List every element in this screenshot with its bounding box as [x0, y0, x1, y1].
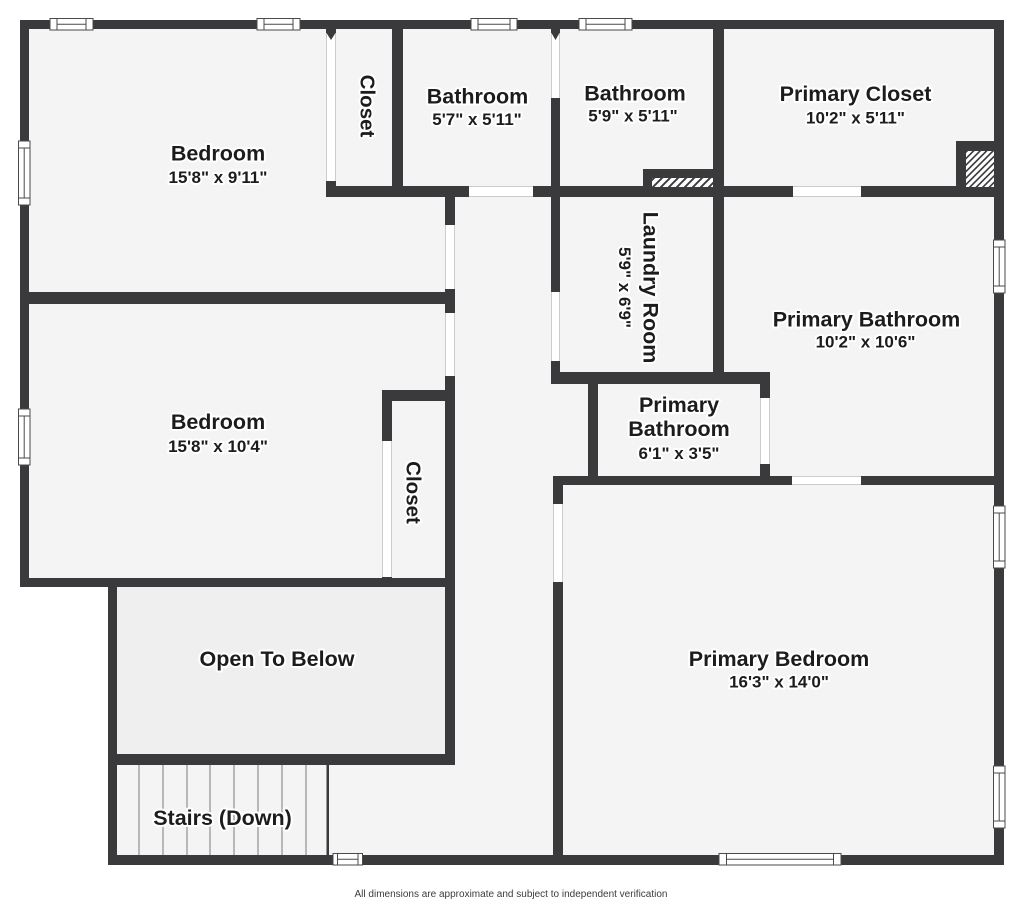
svg-text:Bathroom: Bathroom [584, 82, 686, 106]
svg-text:Bathroom: Bathroom [427, 85, 529, 109]
svg-text:Stairs (Down): Stairs (Down) [153, 806, 292, 830]
svg-text:Laundry Room: Laundry Room [639, 212, 663, 364]
svg-text:Primary Closet: Primary Closet [780, 82, 932, 106]
svg-text:Primary Bedroom: Primary Bedroom [689, 647, 869, 671]
svg-text:16'3" x 14'0": 16'3" x 14'0" [729, 673, 829, 692]
svg-text:Closet: Closet [356, 75, 379, 138]
svg-text:5'9" x 5'11": 5'9" x 5'11" [588, 107, 677, 126]
svg-text:10'2" x 10'6": 10'2" x 10'6" [816, 333, 916, 352]
svg-text:6'1" x 3'5": 6'1" x 3'5" [639, 444, 720, 463]
svg-text:Bathroom: Bathroom [628, 417, 730, 441]
svg-text:15'8" x 10'4": 15'8" x 10'4" [168, 437, 268, 456]
svg-text:15'8" x 9'11": 15'8" x 9'11" [169, 168, 268, 187]
svg-text:Bedroom: Bedroom [171, 410, 265, 434]
svg-text:Bedroom: Bedroom [171, 142, 265, 166]
svg-text:10'2" x 5'11": 10'2" x 5'11" [806, 109, 905, 128]
svg-text:All dimensions are approximate: All dimensions are approximate and subje… [355, 889, 668, 900]
svg-text:5'9" x 6'9": 5'9" x 6'9" [615, 247, 634, 328]
svg-text:Primary Bathroom: Primary Bathroom [773, 308, 961, 332]
svg-text:Closet: Closet [402, 461, 425, 524]
svg-text:5'7" x 5'11": 5'7" x 5'11" [432, 110, 521, 129]
svg-text:Open To Below: Open To Below [200, 647, 355, 671]
svg-text:Primary: Primary [639, 393, 719, 417]
